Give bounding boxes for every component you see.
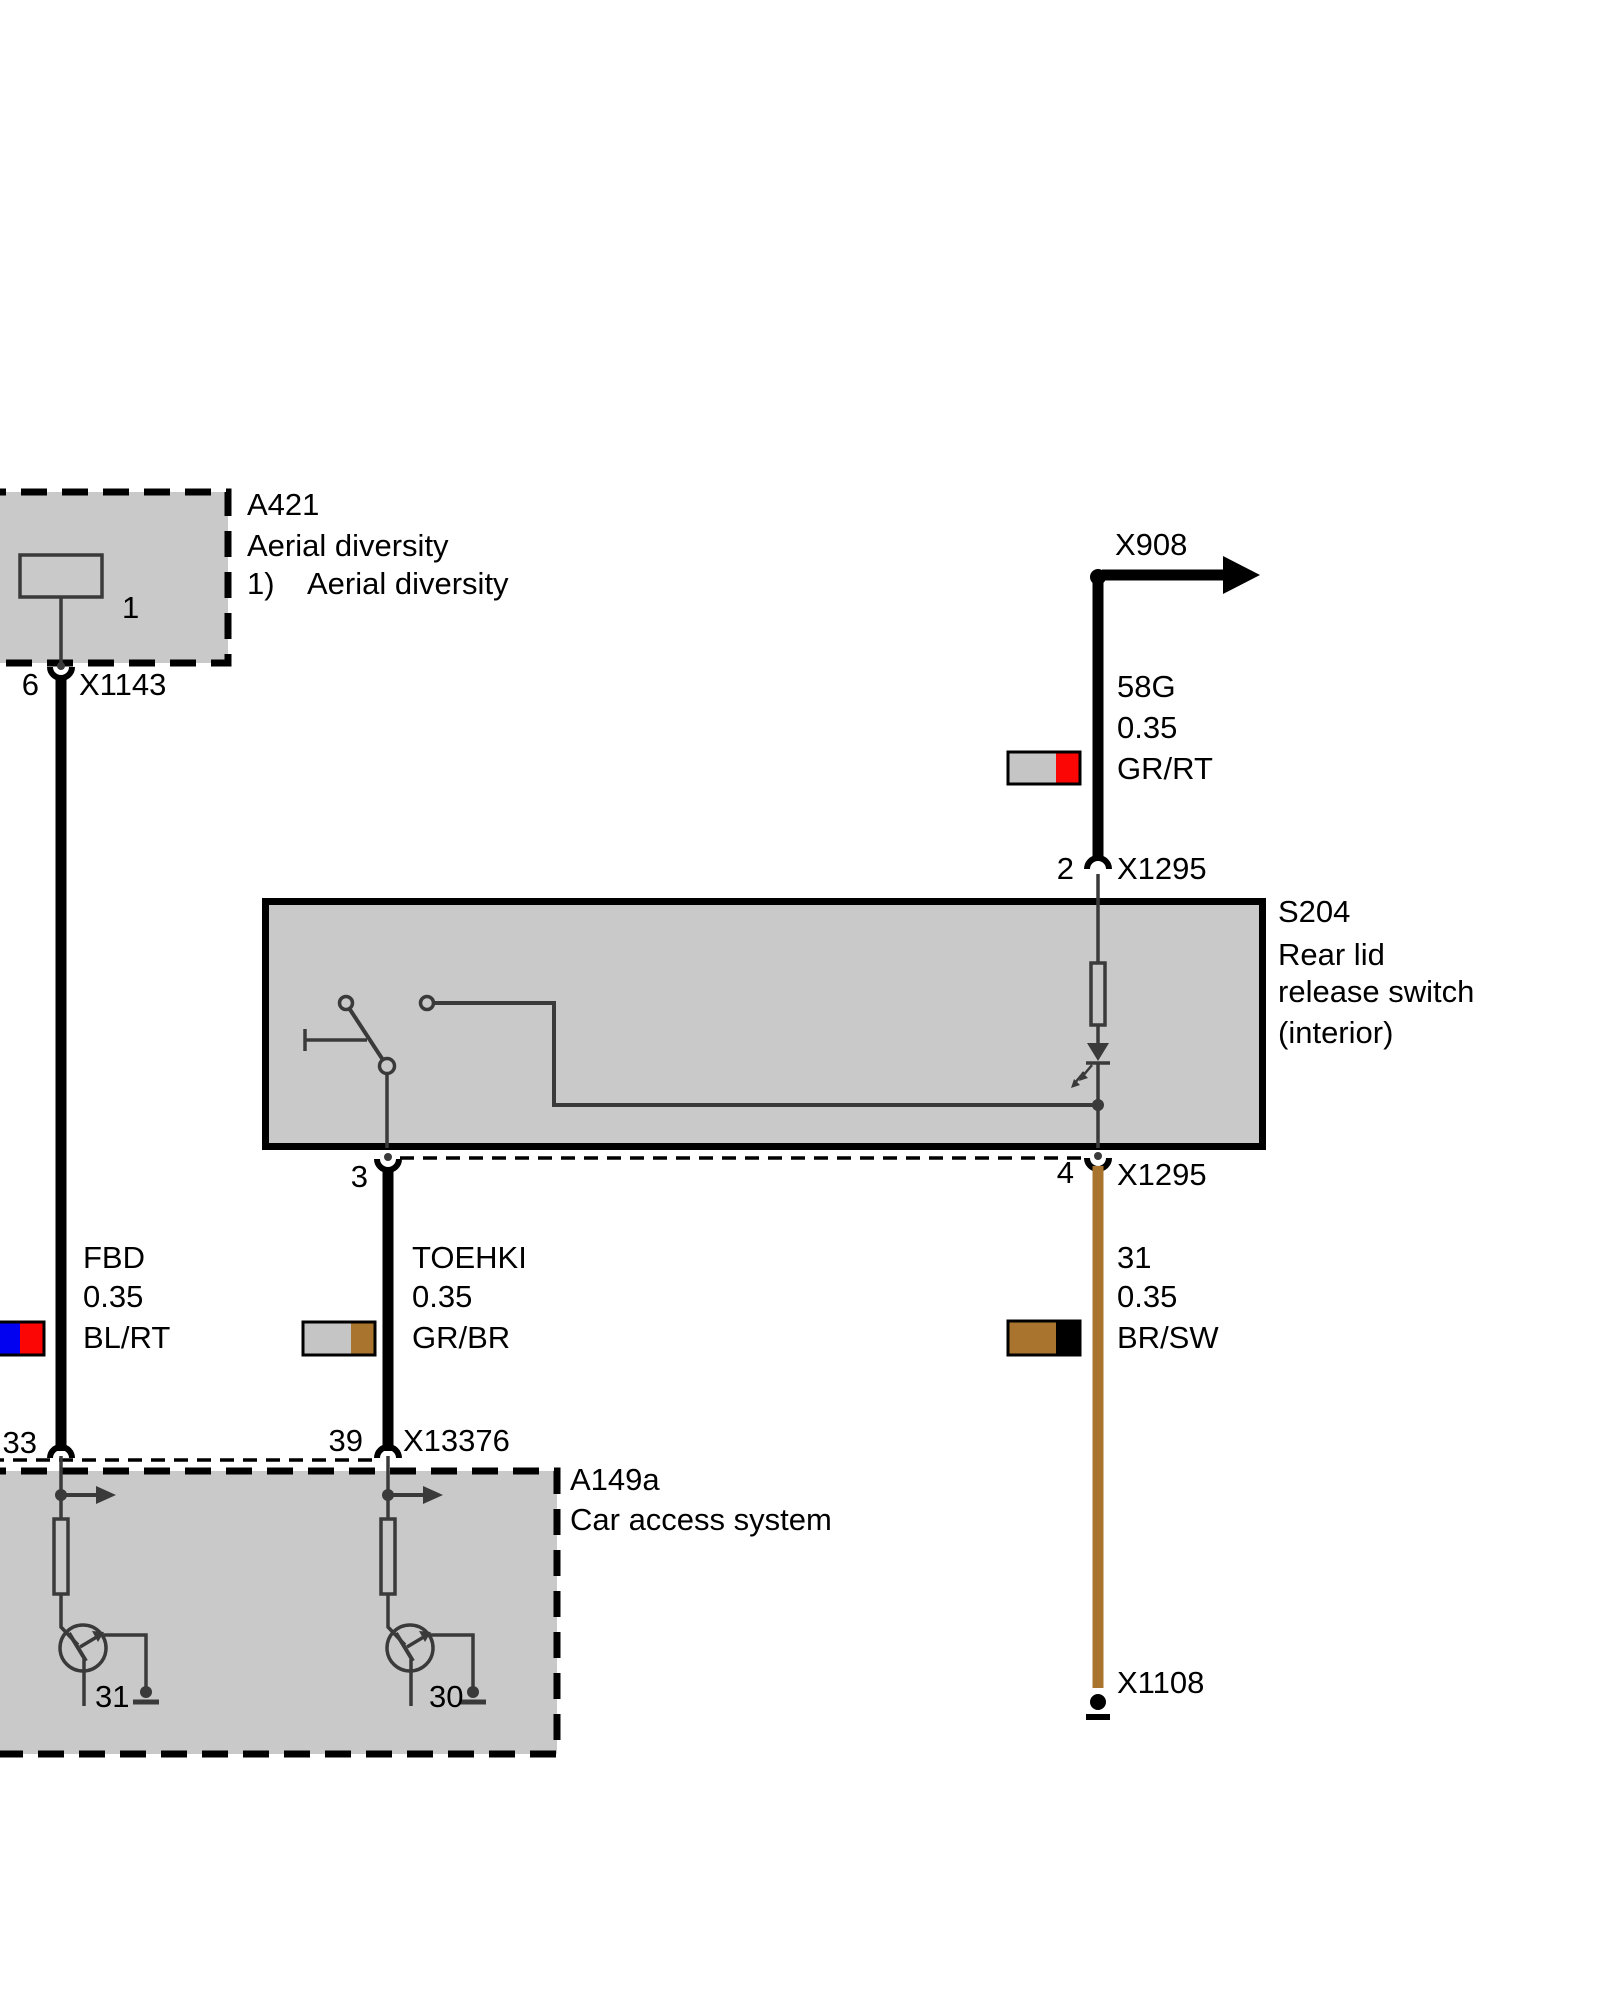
wiring-diagram-canvas: 1 A421 Aerial diversity 1) Aerial divers… [0, 0, 1600, 2000]
resistor [381, 1519, 395, 1594]
fbd-color-swatch [0, 1322, 44, 1355]
x1295-pin3-number: 3 [351, 1159, 368, 1194]
a149a-id-label: A149a [570, 1462, 660, 1497]
fbd-size-label: 0.35 [83, 1279, 143, 1314]
x1295-bottom-label: X1295 [1117, 1157, 1207, 1192]
a421-footnote-marker: 1) [247, 566, 275, 601]
58g-swatch-seg2 [1056, 752, 1080, 784]
pin-tip-dot [1094, 1152, 1102, 1160]
connector-x1295-bottom: 3 4 X1295 [351, 1152, 1207, 1194]
a421-desc-label: Aerial diversity [247, 528, 449, 563]
x1295-pin4-number: 4 [1057, 1155, 1074, 1190]
toehki-code-label: GR/BR [412, 1320, 510, 1355]
wire-fbd: FBD 0.35 BL/RT [0, 676, 170, 1451]
58g-name-label: 58G [1117, 669, 1176, 704]
58g-swatch-seg1 [1008, 752, 1056, 784]
toehki-swatch-seg2 [351, 1322, 375, 1355]
wire-58g: 58G 0.35 GR/RT [1008, 577, 1213, 861]
fbd-code-label: BL/RT [83, 1320, 170, 1355]
s204-desc-line2: release switch [1278, 974, 1474, 1009]
switch-terminal-b [421, 997, 434, 1010]
31-swatch-seg1 [1008, 1321, 1056, 1355]
31-swatch-seg2 [1056, 1321, 1080, 1355]
x908-arrow-icon [1223, 556, 1260, 594]
wire-31: 31 0.35 BR/SW [1008, 1166, 1219, 1688]
a421-inner-pin-label: 1 [122, 590, 139, 625]
a421-id-label: A421 [247, 487, 319, 522]
x908-label: X908 [1115, 527, 1187, 562]
s204-box [266, 902, 1263, 1147]
fbd-swatch-seg2 [20, 1322, 44, 1355]
toehki-size-label: 0.35 [412, 1279, 472, 1314]
s204-junction-dot [1092, 1099, 1104, 1111]
pin-tip-dot [384, 1153, 392, 1161]
x1295-pin2-number: 2 [1057, 851, 1074, 886]
connector-x1108: X1108 [1086, 1665, 1204, 1717]
fbd-swatch-seg1 [0, 1322, 20, 1355]
s204-resistor [1091, 963, 1105, 1025]
toehki-name-label: TOEHKI [412, 1240, 527, 1275]
ground-dot [140, 1686, 152, 1698]
x1143-label: X1143 [79, 667, 166, 702]
a149a-desc-label: Car access system [570, 1502, 832, 1537]
ground-dot [467, 1686, 479, 1698]
x13376-pin39-number: 39 [329, 1423, 363, 1458]
58g-code-label: GR/RT [1117, 751, 1213, 786]
toehki-color-swatch [303, 1322, 375, 1355]
switch-terminal-a [340, 997, 353, 1010]
wiring-diagram-page: 1 A421 Aerial diversity 1) Aerial divers… [0, 0, 1600, 2000]
connector-x13376: 33 39 X13376 [0, 1423, 510, 1460]
a149a-pin31-label: 31 [95, 1679, 129, 1714]
31-code-label: BR/SW [1117, 1320, 1219, 1355]
a421-footnote-text: Aerial diversity [307, 566, 509, 601]
x1108-ground-dot [1090, 1694, 1106, 1710]
switch-terminal-c [380, 1059, 395, 1074]
socket-cup-icon [1087, 858, 1109, 869]
x13376-pin33-number: 33 [3, 1425, 37, 1460]
connector-x908: X908 [1090, 527, 1260, 594]
connector-x1143: 6 X1143 [22, 662, 167, 702]
component-s204: S204 Rear lid release switch (interior) [266, 874, 1475, 1148]
s204-id-label: S204 [1278, 894, 1350, 929]
x1295-top-label: X1295 [1117, 851, 1207, 886]
s204-desc-line1: Rear lid [1278, 937, 1385, 972]
pin-tip-dot [57, 662, 65, 670]
58g-color-swatch [1008, 752, 1080, 784]
component-a149a: 31 30 A149a Car access system [0, 1456, 832, 1754]
resistor [54, 1519, 68, 1594]
a149a-pin30-label: 30 [429, 1679, 463, 1714]
31-name-label: 31 [1117, 1240, 1151, 1275]
31-size-label: 0.35 [1117, 1279, 1177, 1314]
x13376-label: X13376 [403, 1423, 510, 1458]
toehki-swatch-seg1 [303, 1322, 351, 1355]
x1108-label: X1108 [1117, 1665, 1204, 1700]
a149a-box [0, 1471, 557, 1754]
a421-box [0, 492, 228, 663]
fbd-name-label: FBD [83, 1240, 145, 1275]
s204-desc-line3: (interior) [1278, 1015, 1393, 1050]
component-a421: 1 A421 Aerial diversity 1) Aerial divers… [0, 487, 509, 666]
58g-size-label: 0.35 [1117, 710, 1177, 745]
wire-toehki: TOEHKI 0.35 GR/BR [303, 1167, 527, 1451]
31-color-swatch [1008, 1321, 1080, 1355]
x1143-pin-number: 6 [22, 667, 39, 702]
connector-x1295-top: 2 X1295 [1057, 851, 1207, 886]
